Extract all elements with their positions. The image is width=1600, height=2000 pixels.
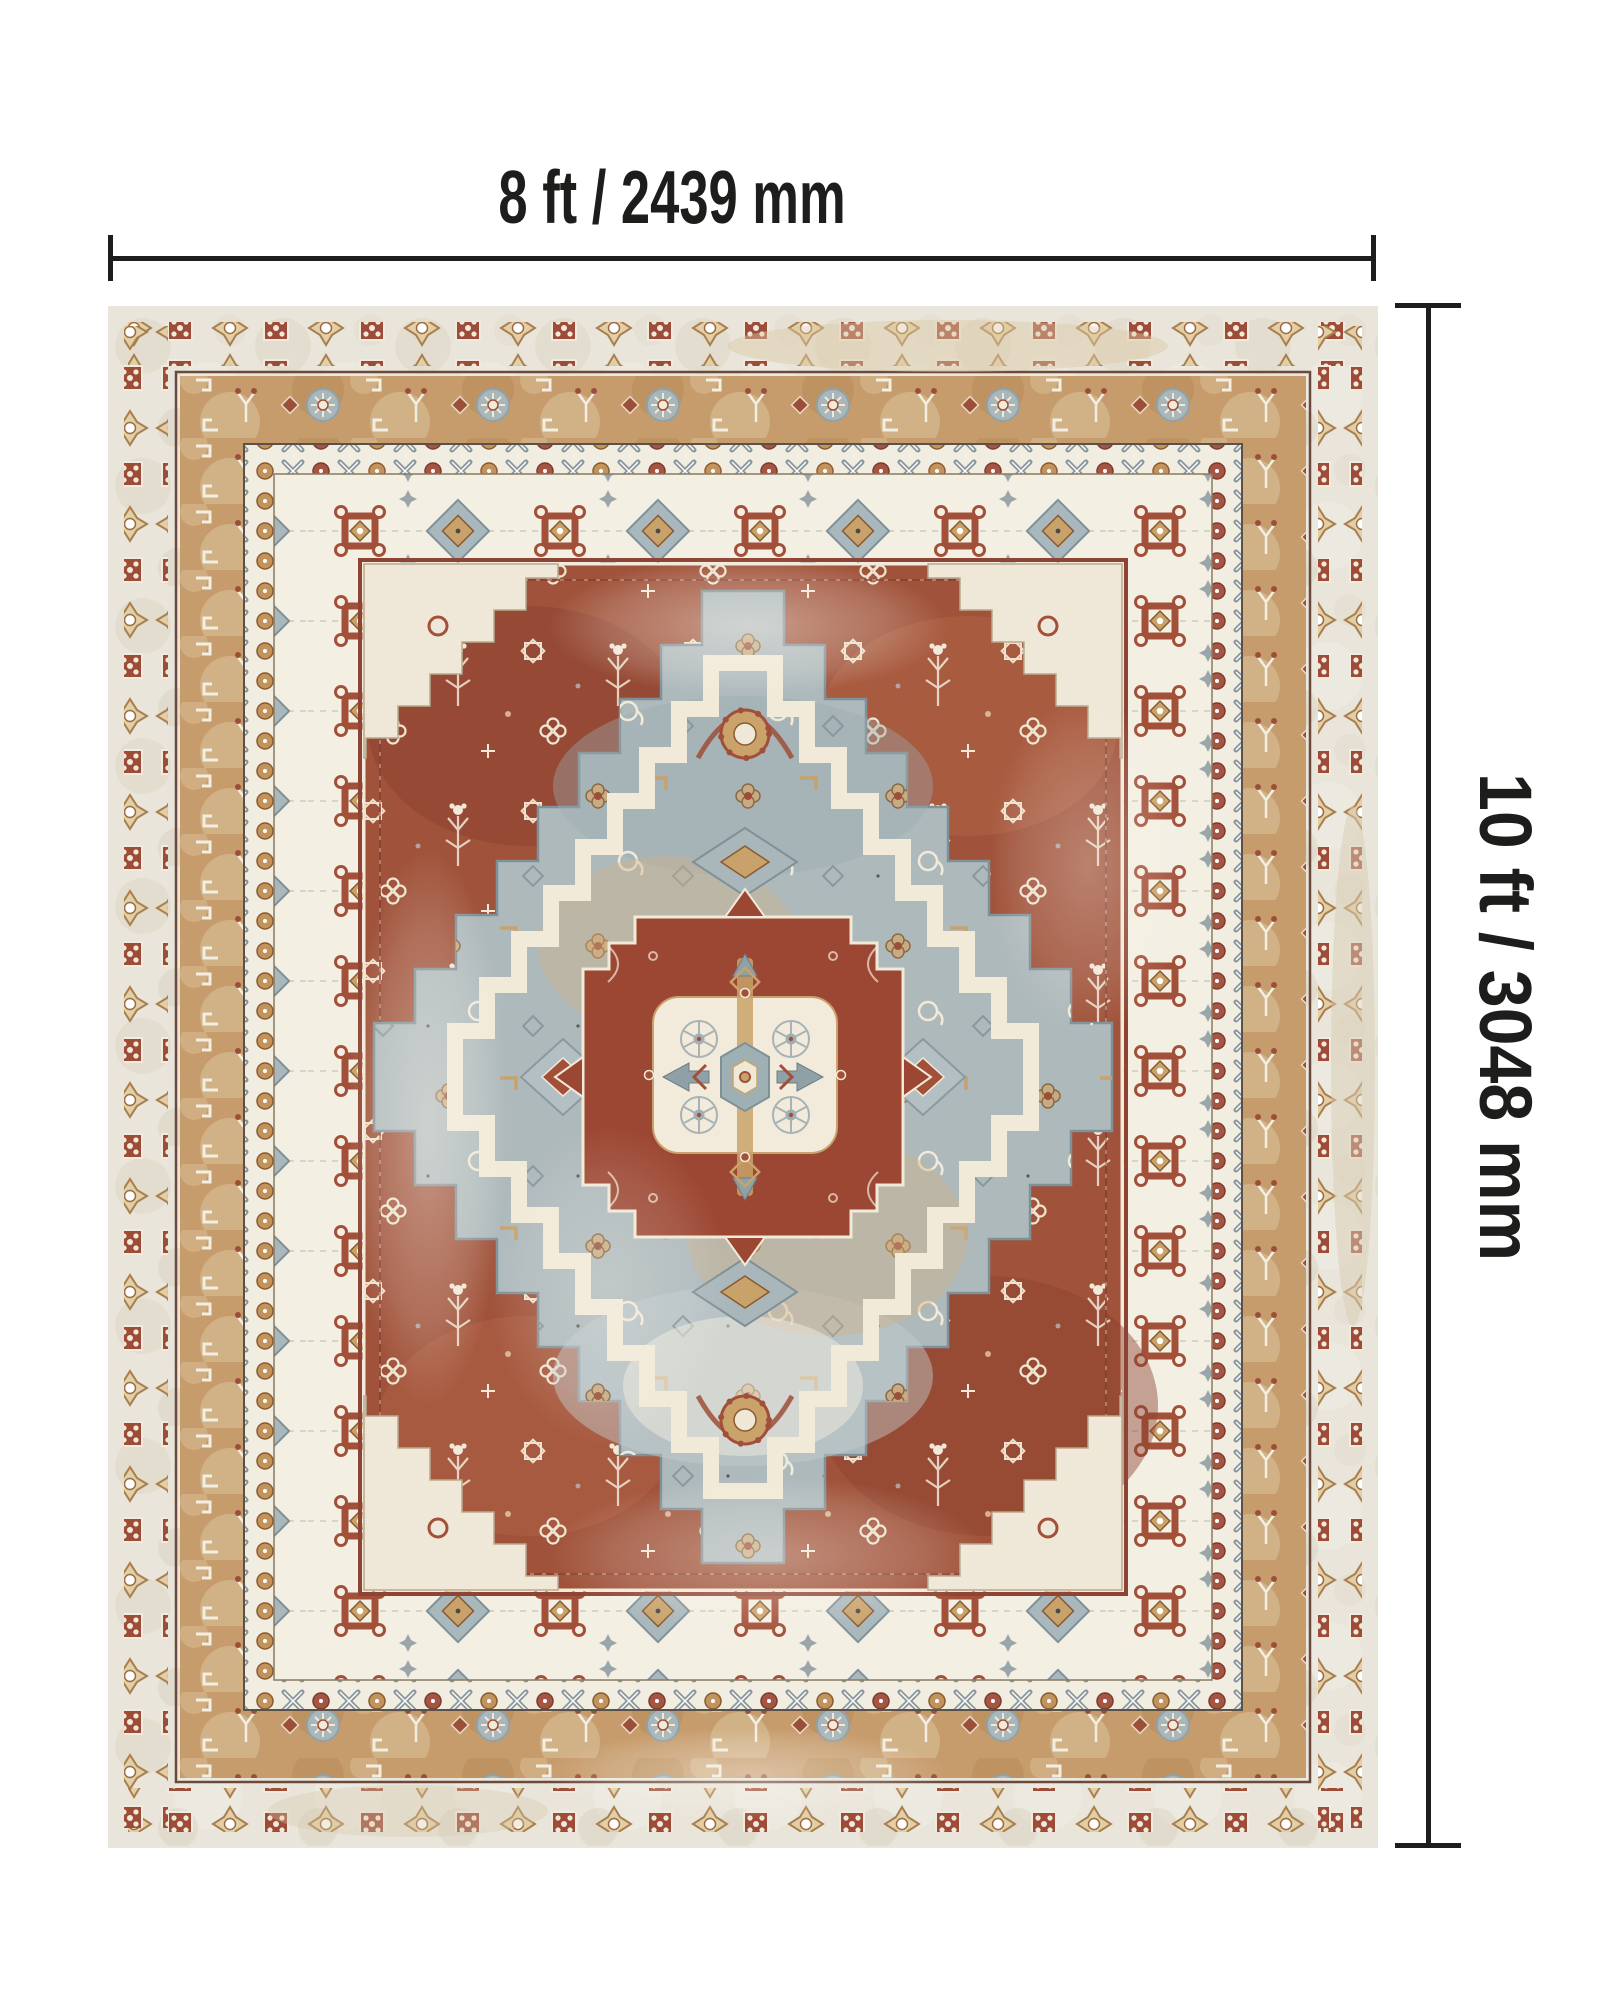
height-tick-top [1395, 303, 1461, 308]
width-annotation: 8 ft / 2439 mm [40, 160, 1304, 235]
width-tick-left [108, 235, 113, 281]
height-tick-bottom [1395, 1843, 1461, 1848]
width-dimension-line [110, 256, 1374, 261]
width-label: 8 ft / 2439 mm [498, 160, 845, 235]
height-dimension-line [1426, 305, 1431, 1845]
rug-dimension-image: 8 ft / 2439 mm 10 ft / 3048 mm [0, 0, 1600, 2000]
rug-svg [108, 306, 1378, 1848]
width-tick-right [1371, 235, 1376, 281]
rug-image [108, 306, 1378, 1848]
height-label: 10 ft / 3048 mm [1468, 773, 1542, 1261]
